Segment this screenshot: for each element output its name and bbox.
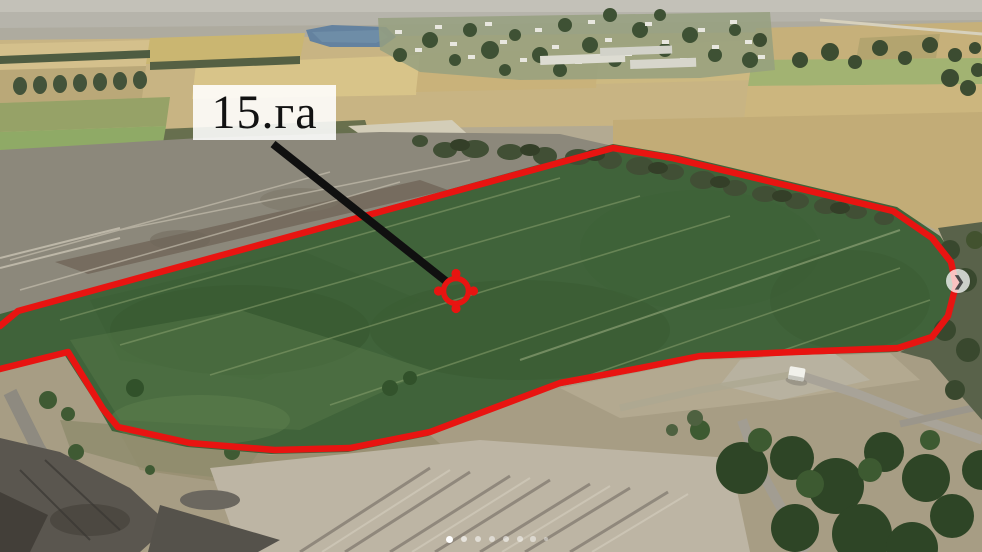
area-label: 15.га bbox=[193, 85, 336, 140]
carousel-next-button[interactable]: ❯ bbox=[946, 269, 970, 293]
photo-post: 15.га ❯ bbox=[0, 0, 982, 552]
aerial-photo bbox=[0, 0, 982, 552]
chevron-right-icon: ❯ bbox=[953, 274, 965, 288]
